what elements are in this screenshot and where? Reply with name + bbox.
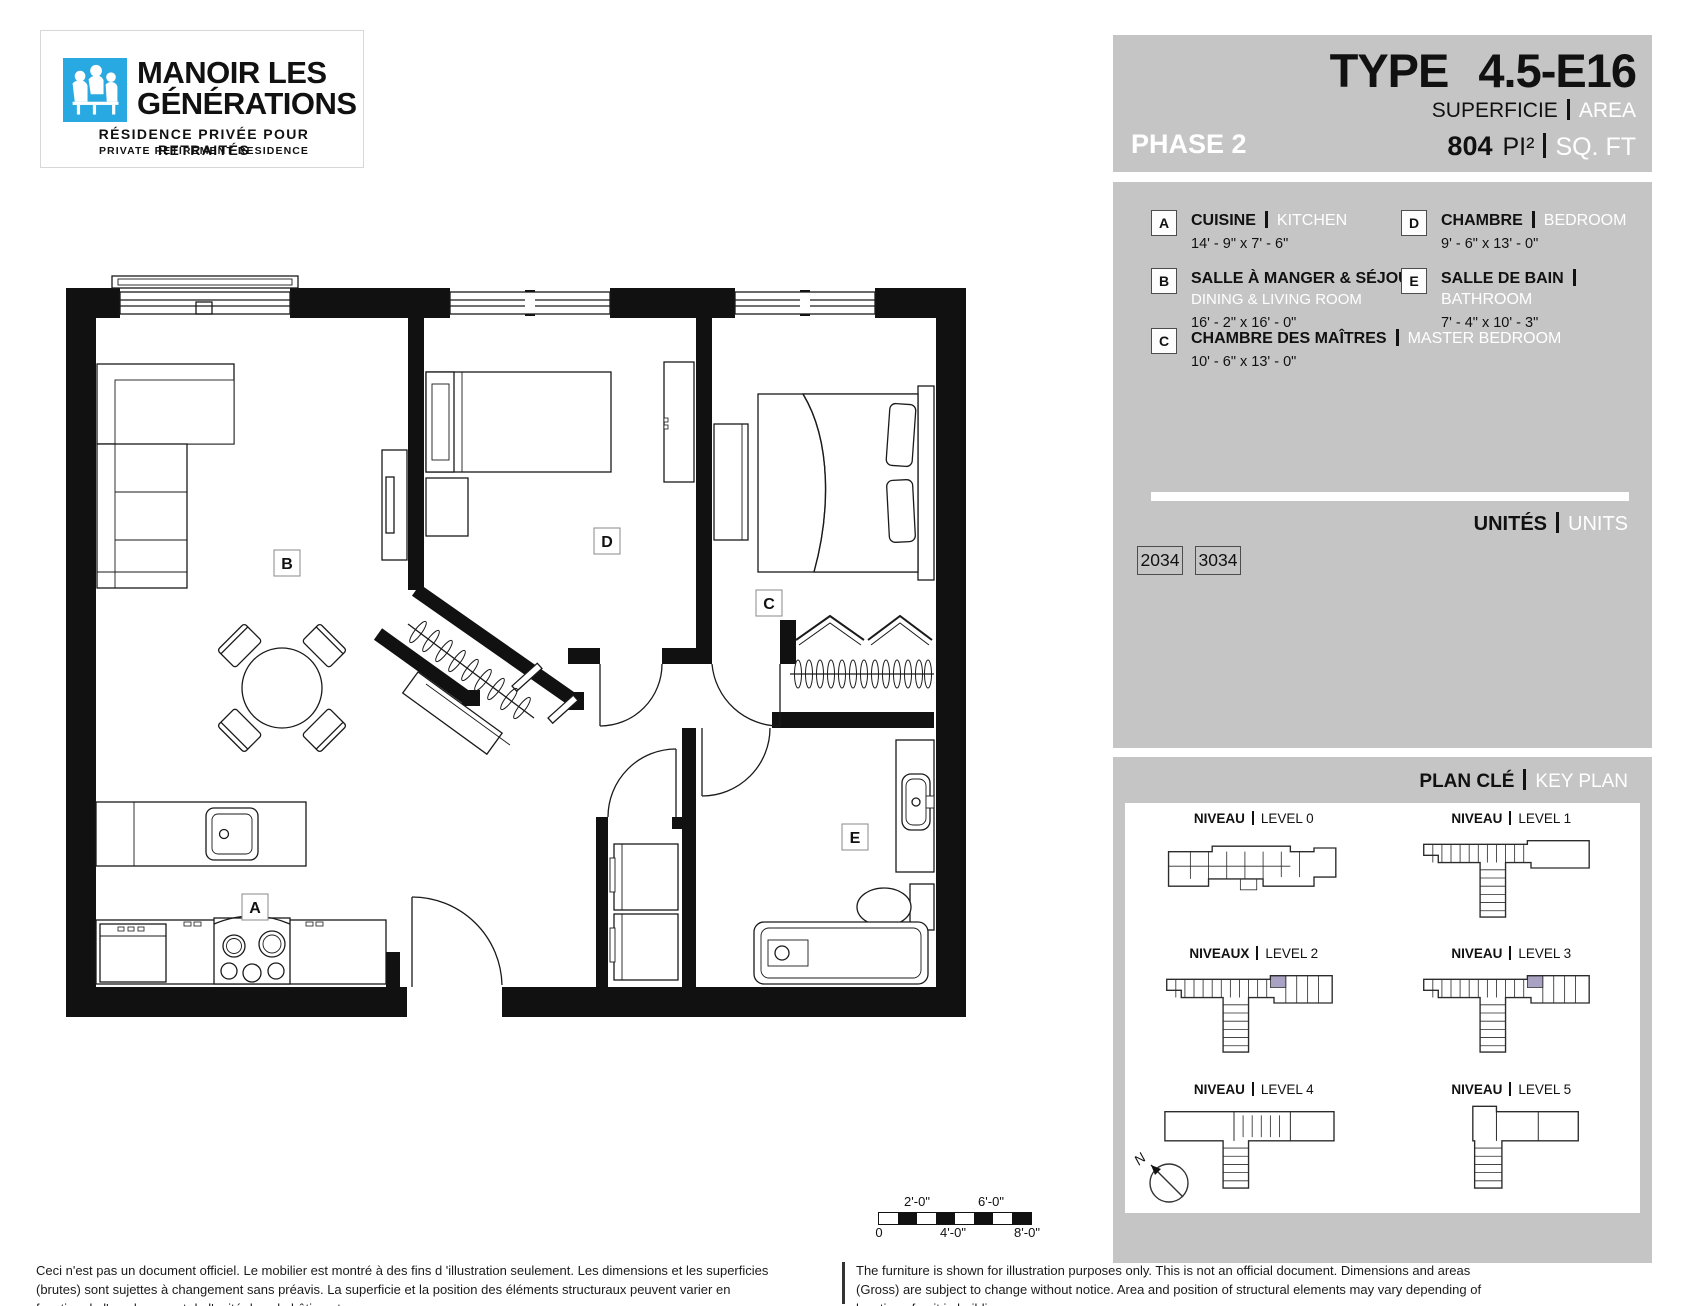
keyplan-level-0: NIVEAULEVEL 0 [1125, 807, 1383, 942]
building-outline-level2 [1149, 963, 1359, 1063]
svg-text:D: D [601, 534, 613, 551]
legend-dimensions: 10' - 6" x 13' - 0" [1191, 352, 1561, 373]
legend-name: CUISINEKITCHEN [1191, 212, 1347, 229]
building-outline-level0 [1149, 828, 1359, 928]
scale-label: 2'-0" [894, 1194, 940, 1209]
legend-dimensions: 14' - 9" x 7' - 6" [1191, 234, 1347, 255]
disclaimer-fr: Ceci n'est pas un document officiel. Le … [36, 1262, 778, 1306]
title-block-panel: TYPE4.5-E16 SUPERFICIEAREA PHASE 2 804PI… [1113, 35, 1652, 172]
room-label-c: C [756, 590, 782, 616]
room-legend-panel: A CUISINEKITCHEN 14' - 9" x 7' - 6" B SA… [1113, 182, 1652, 748]
legend-dimensions: 7' - 4" x 10' - 3" [1441, 313, 1652, 334]
svg-text:N: N [1133, 1149, 1149, 1168]
wardrobe [664, 362, 694, 482]
legend-key-e: E [1401, 268, 1427, 294]
legend-item-dining-living: B SALLE À MANGER & SÉJOUR DINING & LIVIN… [1151, 268, 1421, 334]
key-plan-grid: NIVEAULEVEL 0 NIVEAULEVEL 1 [1125, 803, 1640, 1213]
unit-number-2034: 2034 [1137, 546, 1183, 575]
legend-key-a: A [1151, 210, 1177, 236]
legend-key-b: B [1151, 268, 1177, 294]
bathtub [754, 922, 928, 984]
room-label-e: E [842, 824, 868, 850]
room-label-d: D [594, 528, 620, 554]
dining-table [217, 623, 346, 752]
scale-label: 4'-0" [930, 1225, 976, 1240]
compass-north-icon: N [1133, 1147, 1197, 1211]
legend-item-kitchen: A CUISINEKITCHEN 14' - 9" x 7' - 6" [1151, 210, 1347, 255]
area-heading: SUPERFICIEAREA [1432, 99, 1636, 123]
keyplan-level-1: NIVEAULEVEL 1 [1383, 807, 1641, 942]
scale-label: 6'-0" [968, 1194, 1014, 1209]
logo-people-icon [63, 57, 127, 123]
area-value: 804PI²SQ. FT [1447, 131, 1636, 162]
disclaimer-divider [842, 1262, 845, 1304]
svg-text:E: E [850, 830, 861, 847]
floorplan-sheet: MANOIR LES GÉNÉRATIONS RÉSIDENCE PRIVÉE … [0, 0, 1690, 1306]
tv-console [382, 450, 407, 560]
units-heading: UNITÉSUNITS [1474, 512, 1628, 536]
keyplan-level-5: NIVEAULEVEL 5 [1383, 1078, 1641, 1213]
washer-dryer-stack [610, 844, 678, 980]
unit-type-title: TYPE4.5-E16 [1330, 43, 1636, 98]
scale-label: 0 [856, 1225, 902, 1240]
svg-text:B: B [281, 556, 293, 573]
nightstand [426, 478, 468, 536]
legend-key-c: C [1151, 328, 1177, 354]
dresser [714, 424, 748, 540]
building-outline-level1 [1406, 828, 1616, 928]
fridge [100, 924, 166, 982]
vanity-sink [896, 740, 934, 872]
keyplan-level-3: NIVEAULEVEL 3 [1383, 942, 1641, 1077]
legend-dimensions: 9' - 6" x 13' - 0" [1441, 234, 1626, 255]
building-outline-level5 [1406, 1099, 1616, 1199]
scale-bar-segments [878, 1212, 1032, 1225]
legend-item-bathroom: E SALLE DE BAINBATHROOM 7' - 4" x 10' - … [1401, 268, 1652, 334]
svg-text:C: C [763, 596, 775, 613]
windows [112, 276, 875, 314]
room-label-a: A [242, 894, 268, 920]
room-label-b: B [274, 550, 300, 576]
logo-subtitle-en: PRIVATE RETIREMENT RESIDENCE [59, 145, 349, 157]
closet-hangers-c [790, 660, 934, 688]
building-outline-level3 [1406, 963, 1616, 1063]
double-bed [758, 386, 934, 580]
key-plan-panel: PLAN CLÉKEY PLAN NIVEAULEVEL 0 NIVEAULEV… [1113, 757, 1652, 1263]
logo-title: MANOIR LES GÉNÉRATIONS [137, 57, 357, 119]
closet-bifold-c [796, 616, 932, 645]
stove [214, 916, 290, 984]
sectional-sofa [97, 364, 234, 588]
divider [1151, 492, 1629, 501]
scale-bar: 2'-0" 6'-0" 0 4'-0" 8'-0" [872, 1194, 1042, 1244]
scale-label: 8'-0" [1004, 1225, 1050, 1240]
svg-text:A: A [249, 900, 261, 917]
keyplan-level-2: NIVEAUXLEVEL 2 [1125, 942, 1383, 1077]
legend-item-bedroom: D CHAMBREBEDROOM 9' - 6" x 13' - 0" [1401, 210, 1626, 255]
disclaimer-en: The furniture is shown for illustration … [856, 1262, 1508, 1306]
unit-number-3034: 3034 [1195, 546, 1241, 575]
phase-label: PHASE 2 [1131, 129, 1247, 160]
legend-name: SALLE DE BAINBATHROOM [1441, 270, 1585, 308]
legend-name-en: DINING & LIVING ROOM [1191, 289, 1421, 310]
key-plan-heading: PLAN CLÉKEY PLAN [1419, 769, 1628, 793]
legend-name: SALLE À MANGER & SÉJOUR [1191, 270, 1421, 287]
highlighted-unit [1270, 976, 1285, 988]
legend-name: CHAMBREBEDROOM [1441, 212, 1626, 229]
highlighted-unit [1528, 976, 1543, 988]
kitchen-island-sink [96, 802, 306, 866]
legend-item-master-bedroom: C CHAMBRE DES MAÎTRESMASTER BEDROOM 10' … [1151, 328, 1561, 373]
logo: MANOIR LES GÉNÉRATIONS RÉSIDENCE PRIVÉE … [40, 30, 364, 168]
single-bed [426, 372, 611, 472]
floor-plan-drawing: B D C A E [66, 272, 966, 1042]
legend-key-d: D [1401, 210, 1427, 236]
